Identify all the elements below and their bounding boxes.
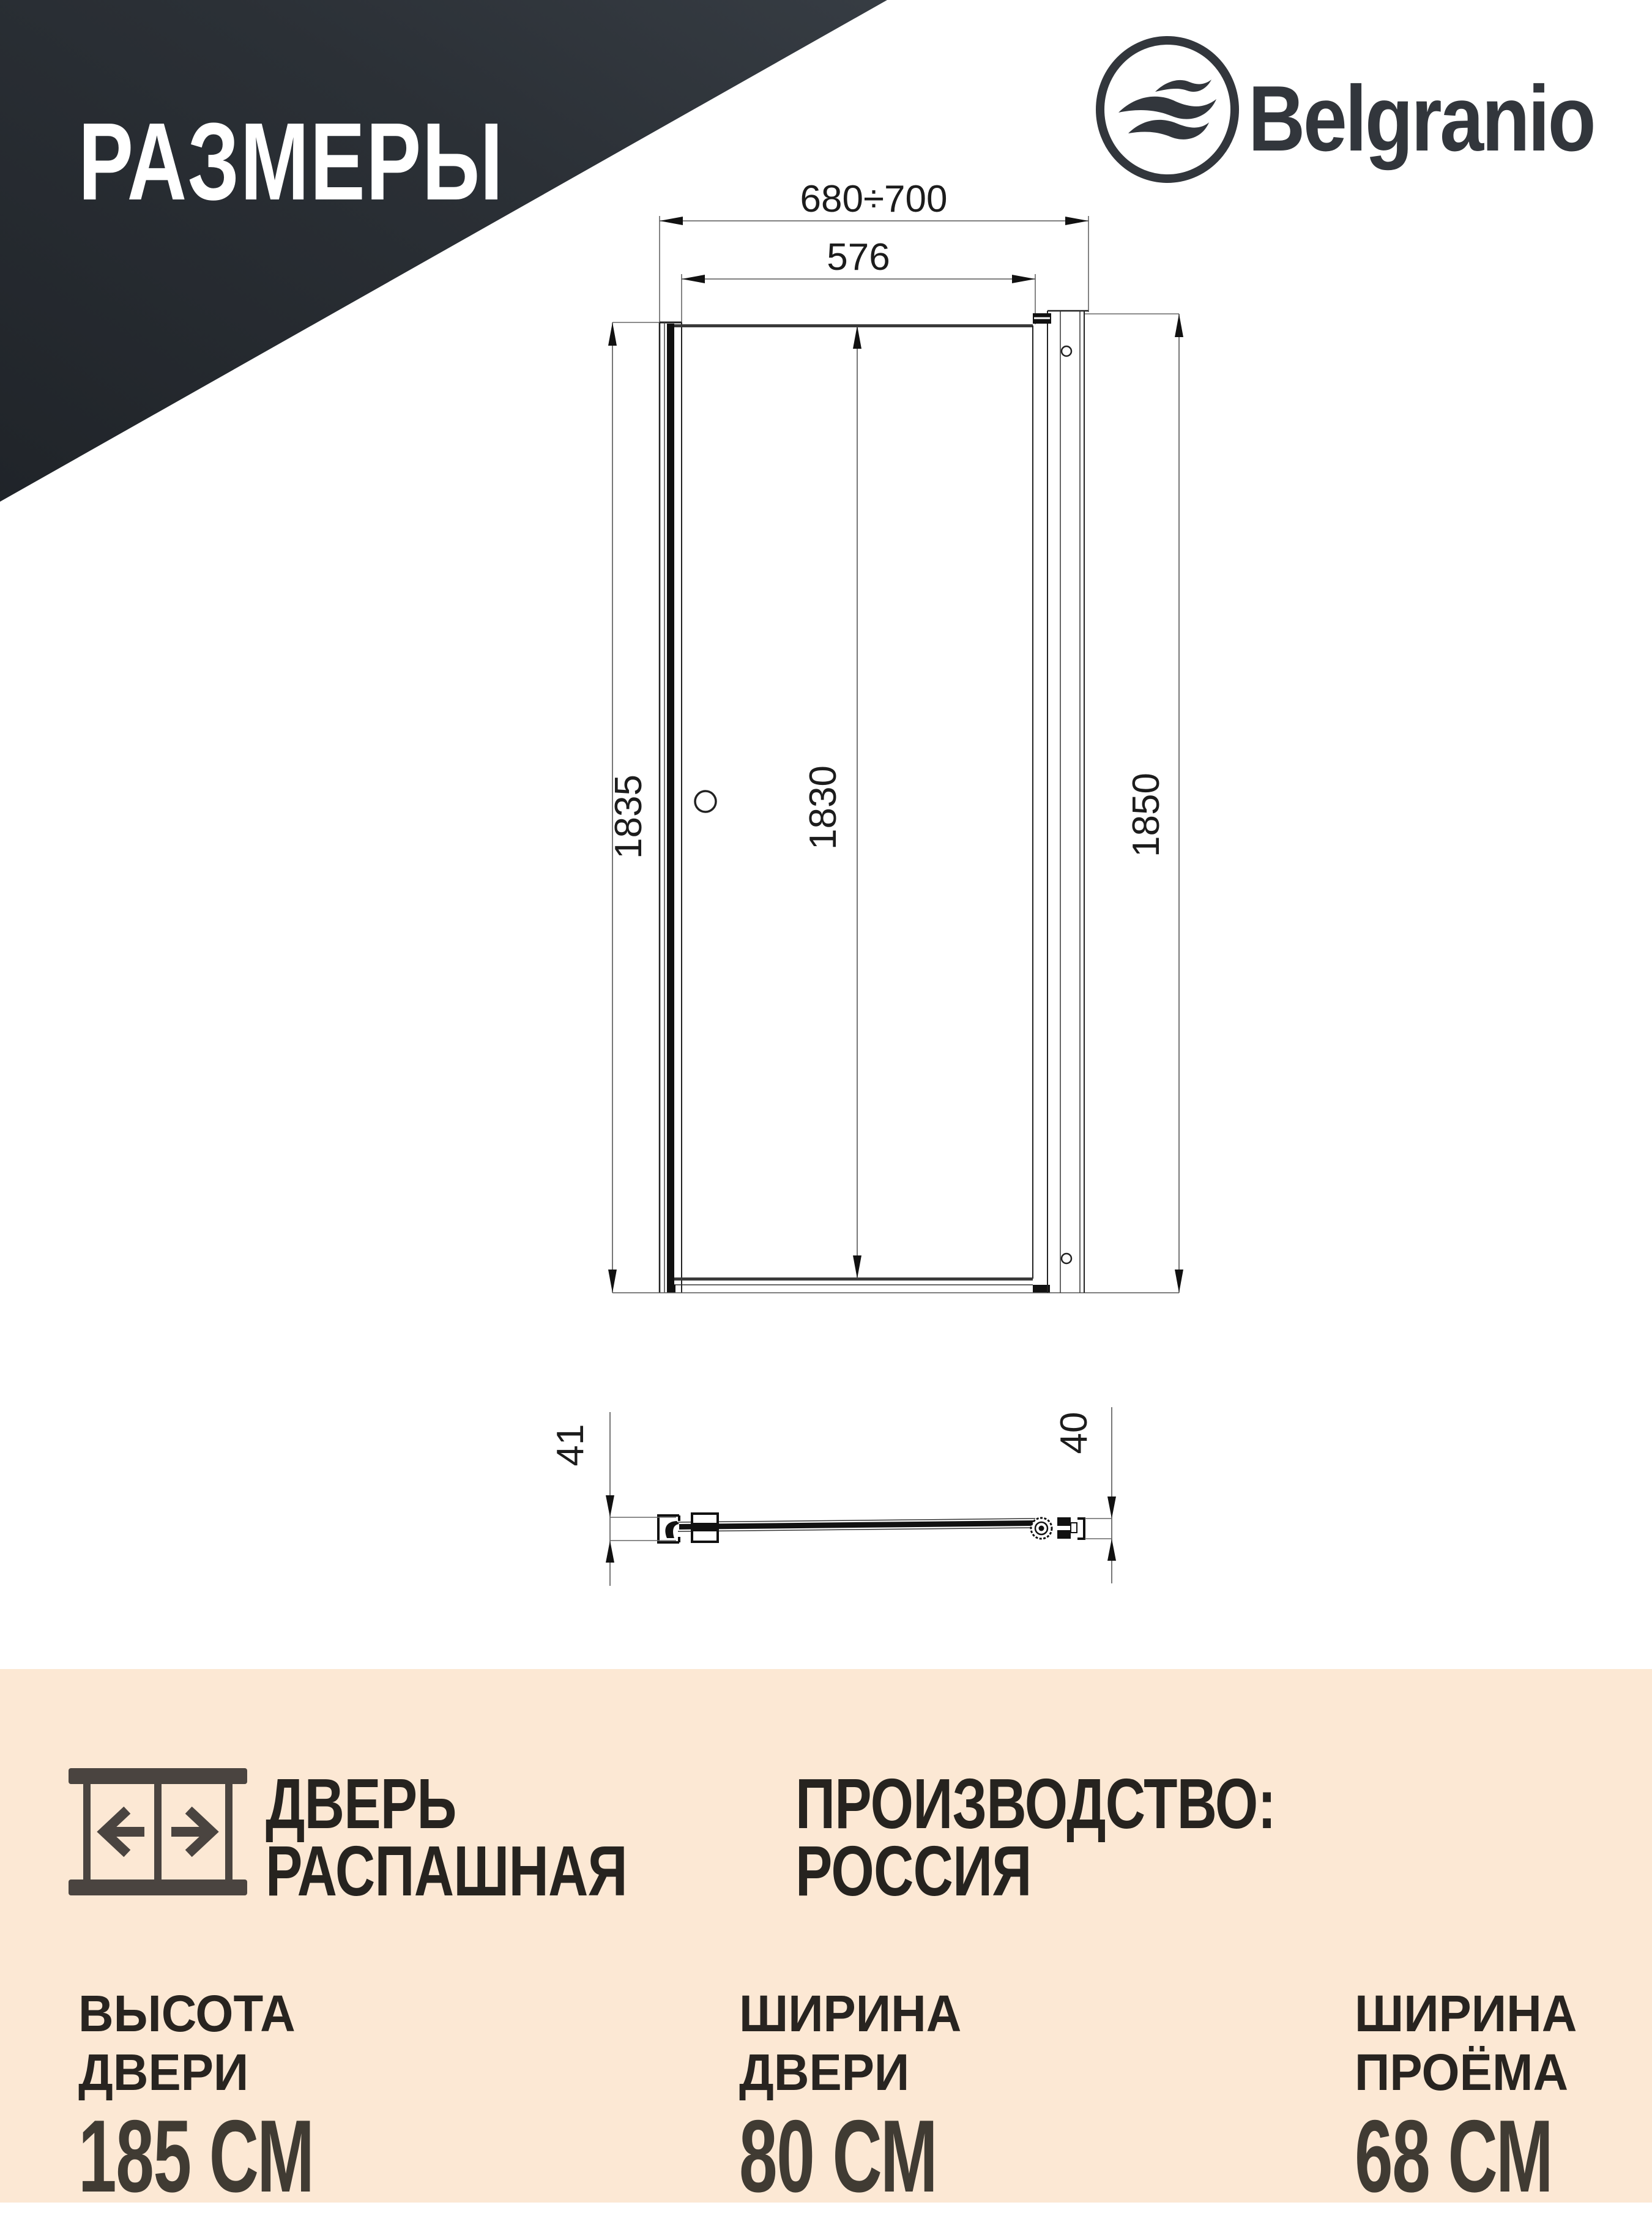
brand-name: Belgranio — [1248, 66, 1594, 170]
left-wall-profile — [660, 322, 682, 1293]
plan-wall-bracket — [658, 1515, 679, 1542]
spec-door-width: ШИРИНА ДВЕРИ 80 СМ — [739, 1985, 973, 2102]
dim-left-height: 1835 — [608, 775, 650, 859]
spec-label: ШИРИНА — [739, 1985, 961, 2043]
production-value: РОССИЯ — [795, 1838, 1276, 1905]
door-handle-knob — [695, 791, 716, 812]
dim-opening-width: 680÷700 — [800, 178, 948, 220]
dim-right-depth: 40 — [1053, 1412, 1095, 1454]
pillar-screw-top — [1062, 346, 1071, 356]
page-title: РАЗМЕРЫ — [78, 100, 504, 226]
dim-glass-width: 576 — [827, 236, 890, 278]
dim-door-height: 1830 — [802, 765, 844, 850]
front-view: 680÷700 576 1835 1830 1850 — [608, 178, 1183, 1293]
door-type-line2: РАСПАШНАЯ — [266, 1838, 627, 1905]
glass-door-panel — [674, 324, 1033, 1279]
spec-value: 185 СМ — [78, 2097, 314, 2216]
spec-label: ДВЕРИ — [78, 2043, 296, 2102]
door-type-heading: ДВЕРЬ РАСПАШНАЯ — [266, 1771, 627, 1905]
spec-door-height: ВЫСОТА ДВЕРИ 185 СМ — [78, 1985, 307, 2102]
infographic-page: РАЗМЕРЫ Belgranio 680÷700 576 — [0, 0, 1652, 2203]
spec-label: ДВЕРИ — [739, 2043, 961, 2102]
pillar-screw-bottom — [1062, 1254, 1071, 1263]
production-heading: ПРОИЗВОДСТВО: РОССИЯ — [795, 1771, 1276, 1905]
spec-value: 80 СМ — [739, 2097, 937, 2216]
bottom-sill — [612, 1277, 1179, 1293]
spec-value: 68 СМ — [1355, 2097, 1552, 2216]
swing-door-icon — [69, 1768, 247, 1895]
dim-left-depth: 41 — [551, 1424, 592, 1467]
spec-opening-width: ШИРИНА ПРОЁМА 68 СМ — [1355, 1985, 1589, 2102]
door-type-line1: ДВЕРЬ — [266, 1771, 627, 1838]
spec-label: ПРОЁМА — [1355, 2043, 1577, 2102]
plan-view: 41 40 — [551, 1407, 1116, 1586]
production-label: ПРОИЗВОДСТВО: — [795, 1771, 1276, 1838]
hinge-pillar — [1033, 311, 1088, 1293]
spec-label: ШИРИНА — [1355, 1985, 1577, 2043]
spec-label: ВЫСОТА — [78, 1985, 296, 2043]
plan-hinge — [1031, 1517, 1084, 1539]
dim-total-height: 1850 — [1125, 773, 1167, 857]
technical-drawing: 680÷700 576 1835 1830 1850 — [551, 153, 1254, 1652]
